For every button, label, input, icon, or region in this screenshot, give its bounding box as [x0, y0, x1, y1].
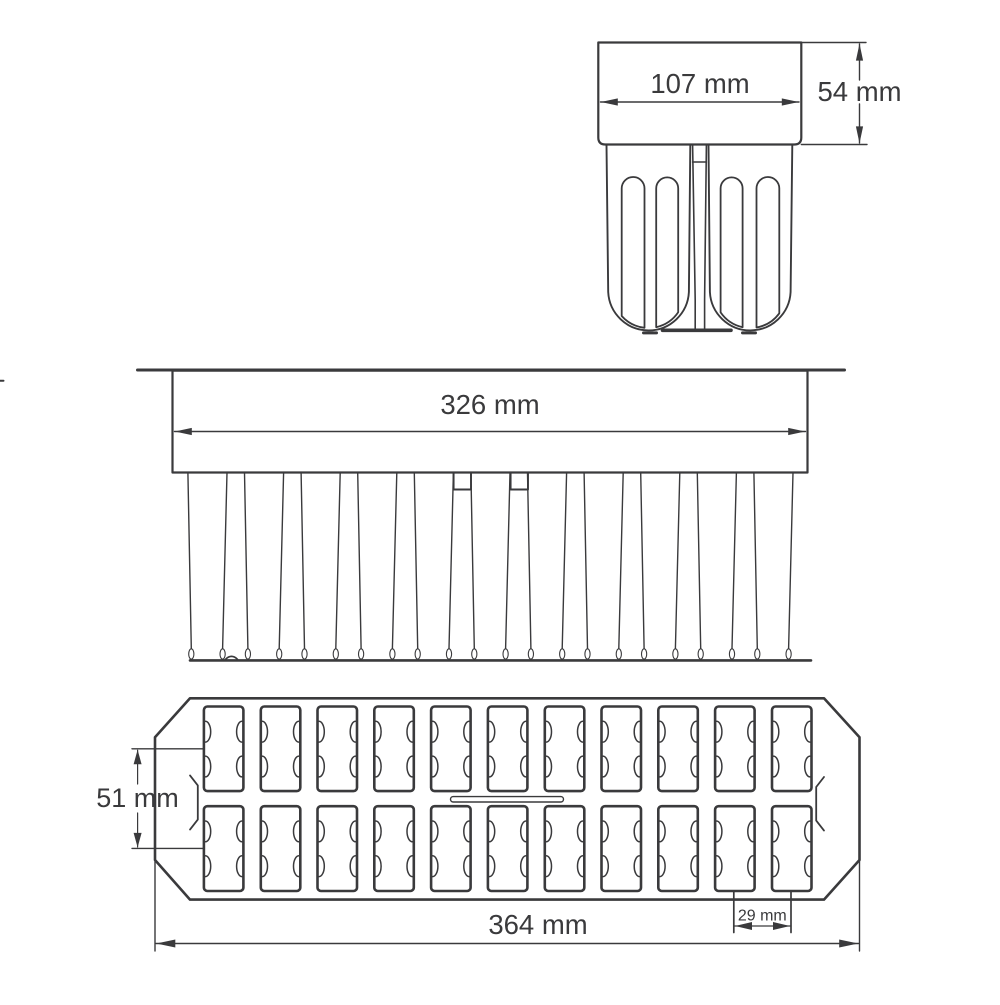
svg-text:326 mm: 326 mm	[440, 389, 539, 420]
svg-text:54 mm: 54 mm	[817, 76, 901, 107]
svg-text:107 mm: 107 mm	[650, 68, 749, 99]
svg-text:29 mm: 29 mm	[738, 908, 787, 925]
svg-text:364 mm: 364 mm	[488, 909, 587, 940]
svg-text:51 mm: 51 mm	[96, 783, 179, 813]
